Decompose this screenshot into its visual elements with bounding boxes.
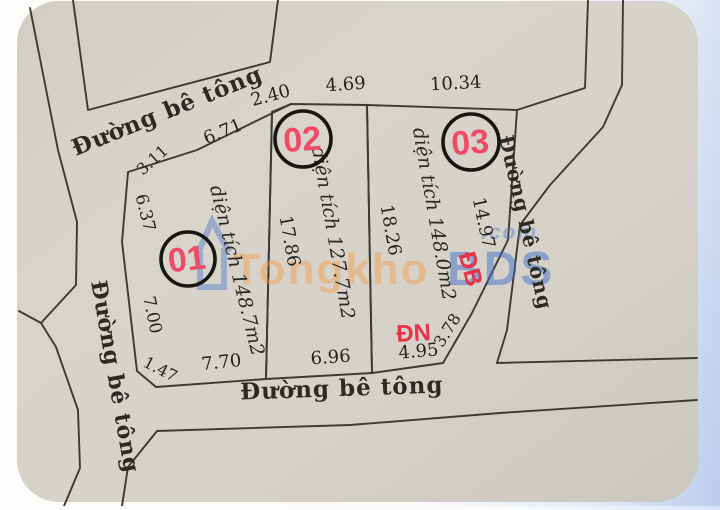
land-plot-diagram: TongkhoBDS.comĐường bê tôngĐường bê tông… xyxy=(0,0,720,506)
dimension-label-6.96: 6.96 xyxy=(310,346,351,370)
plot-number-01: 01 xyxy=(166,239,208,281)
plot-map-svg: TongkhoBDS.comĐường bê tôngĐường bê tông… xyxy=(0,0,720,506)
direction-label-dn: ĐN xyxy=(396,319,432,348)
plot-number-03: 03 xyxy=(450,123,490,164)
dimension-label-4.69: 4.69 xyxy=(325,73,366,97)
plot-number-02: 02 xyxy=(282,120,322,161)
dimension-label-10.34: 10.34 xyxy=(429,72,482,96)
screenshot-root: { "diagram": { "colors": { "paper": "#d6… xyxy=(0,0,720,506)
dimension-label-7.70: 7.70 xyxy=(200,350,242,375)
